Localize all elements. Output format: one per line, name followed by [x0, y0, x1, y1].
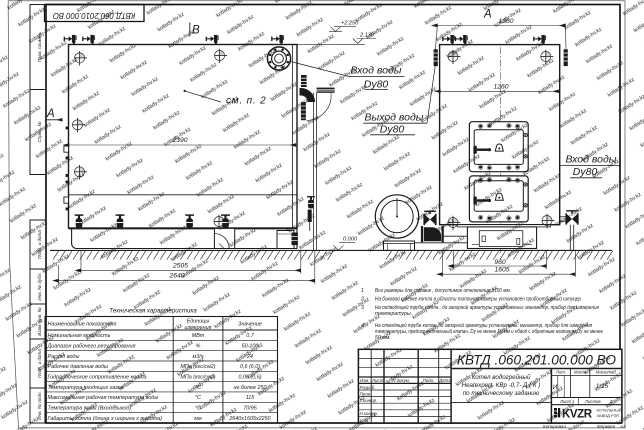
svg-text:Подп. и дата: Подп. и дата [37, 349, 42, 378]
svg-text:50-100: 50-100 [242, 344, 259, 350]
svg-text:Максимальная рабочая температу: Максимальная рабочая температура воды [48, 395, 159, 401]
svg-text:Вход воды: Вход воды [351, 65, 402, 77]
svg-text:2640х1605х2250: 2640х1605х2250 [228, 416, 270, 422]
svg-text:0,6 (6,0): 0,6 (6,0) [240, 364, 260, 370]
svg-text:Температура воды (Вход/Выход): Температура воды (Вход/Выход) [48, 406, 132, 412]
svg-text:мм: мм [194, 416, 202, 422]
svg-text:Выход воды: Выход воды [364, 111, 423, 123]
svg-text:2390: 2390 [171, 137, 187, 144]
svg-text:1360: 1360 [498, 18, 513, 25]
svg-text:температуры.: температуры. [375, 311, 412, 317]
svg-text:Габариты котла (длина х ширина: Габариты котла (длина х ширина х высота) [48, 416, 163, 422]
svg-text:Формат: Формат [597, 424, 615, 429]
svg-text:KVZR: KVZR [562, 409, 593, 421]
svg-text:1:15: 1:15 [596, 383, 609, 390]
svg-text:м3/ч: м3/ч [193, 354, 204, 360]
svg-text:2505: 2505 [172, 262, 188, 269]
svg-text:А: А [46, 108, 55, 120]
svg-text:МПа (кгс/см2): МПа (кгс/см2) [180, 375, 215, 381]
svg-text:Расход воды: Расход воды [48, 354, 80, 360]
svg-text:по техническому заданию: по техническому заданию [463, 390, 540, 397]
svg-text:Все размеры для справок , допу: Все размеры для справок , допустимое отк… [375, 288, 511, 294]
svg-text:2.130: 2.130 [359, 32, 375, 38]
svg-text:Диапазон рабочего регулировани: Диапазон рабочего регулирования [47, 344, 136, 350]
svg-text:°С: °С [195, 385, 201, 391]
svg-text:Наименование показателя: Наименование показателя [48, 322, 117, 328]
svg-text:1: 1 [361, 288, 364, 294]
svg-text:измерения: измерения [185, 325, 212, 331]
svg-text:2: 2 [360, 297, 364, 303]
svg-text:не более 250: не более 250 [234, 385, 267, 391]
svg-text:Инв. № подл.: Инв. № подл. [37, 391, 42, 420]
svg-text:4: 4 [361, 323, 364, 329]
svg-text:МВт: МВт [192, 333, 205, 339]
svg-text:115: 115 [246, 395, 256, 401]
svg-text:N докум.: N докум. [392, 378, 410, 383]
svg-text:КВТД.060.2010.000 ВО: КВТД.060.2010.000 ВО [53, 11, 135, 20]
svg-text:На отводящей трубе котла ,до з: На отводящей трубе котла ,до запорной ар… [375, 322, 592, 329]
svg-text:Dy80: Dy80 [573, 166, 598, 178]
svg-text:1260: 1260 [493, 83, 508, 90]
svg-text:Масса: Масса [574, 370, 587, 375]
svg-text:Heatexpert- КВр -0,7- Д ( К ): Heatexpert- КВр -0,7- Д ( К ) [462, 382, 541, 389]
svg-text:Dy80: Dy80 [364, 79, 389, 91]
svg-text:Дата: Дата [438, 378, 451, 383]
svg-text:Н.контр.: Н.контр. [360, 411, 379, 416]
svg-text:3: 3 [361, 305, 364, 311]
svg-text:°С: °С [195, 406, 201, 412]
svg-text:КВТД .060.201.00.000 ВО: КВТД .060.201.00.000 ВО [457, 352, 616, 367]
svg-text:Инв. № дубл.: Инв. № дубл. [37, 272, 42, 300]
svg-text:Котел водогрейный: Котел водогрейный [472, 374, 531, 381]
svg-text:Копировал: Копировал [543, 424, 566, 429]
svg-text:Лист: Лист [371, 378, 384, 383]
svg-text:МПа (кгс/см2): МПа (кгс/см2) [180, 364, 215, 370]
svg-text:Подп. и дата: Подп. и дата [37, 230, 42, 259]
svg-text:ЗАВОД РЭП: ЗАВОД РЭП [597, 413, 620, 418]
svg-text:Разраб.: Разраб. [360, 385, 376, 390]
svg-text:Листов: Листов [584, 399, 601, 404]
svg-text:температуры, предохранительный: температуры, предохранительный клапан. D… [375, 328, 603, 335]
svg-text:В: В [192, 25, 200, 37]
svg-text:24: 24 [246, 354, 253, 360]
svg-text:А3: А3 [619, 424, 626, 429]
svg-text:И: И [553, 384, 558, 391]
svg-text:Справ. №: Справ. № [37, 122, 42, 143]
svg-text:1605: 1605 [494, 267, 509, 274]
svg-text:Перв. примен.: Перв. примен. [37, 32, 42, 63]
svg-text:На подводящей трубе котла ,: На подводящей трубе котла , до запорной … [375, 304, 599, 311]
svg-text:2640: 2640 [168, 273, 184, 280]
svg-text:+2.250: +2.250 [341, 21, 359, 27]
svg-text:Масштаб: Масштаб [596, 370, 617, 375]
svg-text:50 мм.: 50 мм. [375, 335, 391, 341]
svg-text:Единицы: Единицы [187, 319, 210, 325]
svg-text:Подп.: Подп. [423, 378, 435, 383]
svg-text:%: % [196, 344, 201, 350]
svg-text:Значение: Значение [238, 322, 262, 328]
svg-text:Dy80: Dy80 [380, 124, 405, 136]
svg-text:Пров.: Пров. [360, 391, 372, 396]
svg-text:см. п. 2: см. п. 2 [226, 96, 266, 107]
svg-text:Температура уходящих газов: Температура уходящих газов [48, 385, 124, 391]
svg-text:Изм.: Изм. [360, 378, 369, 383]
svg-text:На боковой стенке котла в обла: На боковой стенке котла в области топочн… [375, 296, 581, 303]
svg-text:°С: °С [195, 395, 201, 401]
svg-text:Рабочее давление воды: Рабочее давление воды [48, 364, 108, 370]
svg-text:70/95: 70/95 [243, 406, 257, 412]
svg-text:А: А [483, 9, 492, 21]
svg-text:960: 960 [494, 259, 506, 266]
svg-text:Т.контр.: Т.контр. [360, 398, 378, 403]
svg-text:Утв.: Утв. [360, 418, 370, 423]
svg-text:Взам. инв. №: Взам. инв. № [37, 307, 42, 335]
svg-text:0.000: 0.000 [343, 236, 358, 242]
svg-text:Номинальная мощность: Номинальная мощность [48, 333, 111, 339]
svg-text:Лист: Лист [559, 399, 571, 404]
svg-text:Гидравлическое сопротивление к: Гидравлическое сопротивление котла [48, 375, 147, 381]
svg-text:Техническая характеристика: Техническая характеристика [109, 307, 197, 314]
svg-text:Вход воды: Вход воды [566, 154, 617, 166]
svg-text:0,06 (0,6): 0,06 (0,6) [238, 375, 261, 381]
svg-text:0,7: 0,7 [246, 333, 254, 339]
svg-text:Лит.: Лит. [555, 370, 566, 375]
